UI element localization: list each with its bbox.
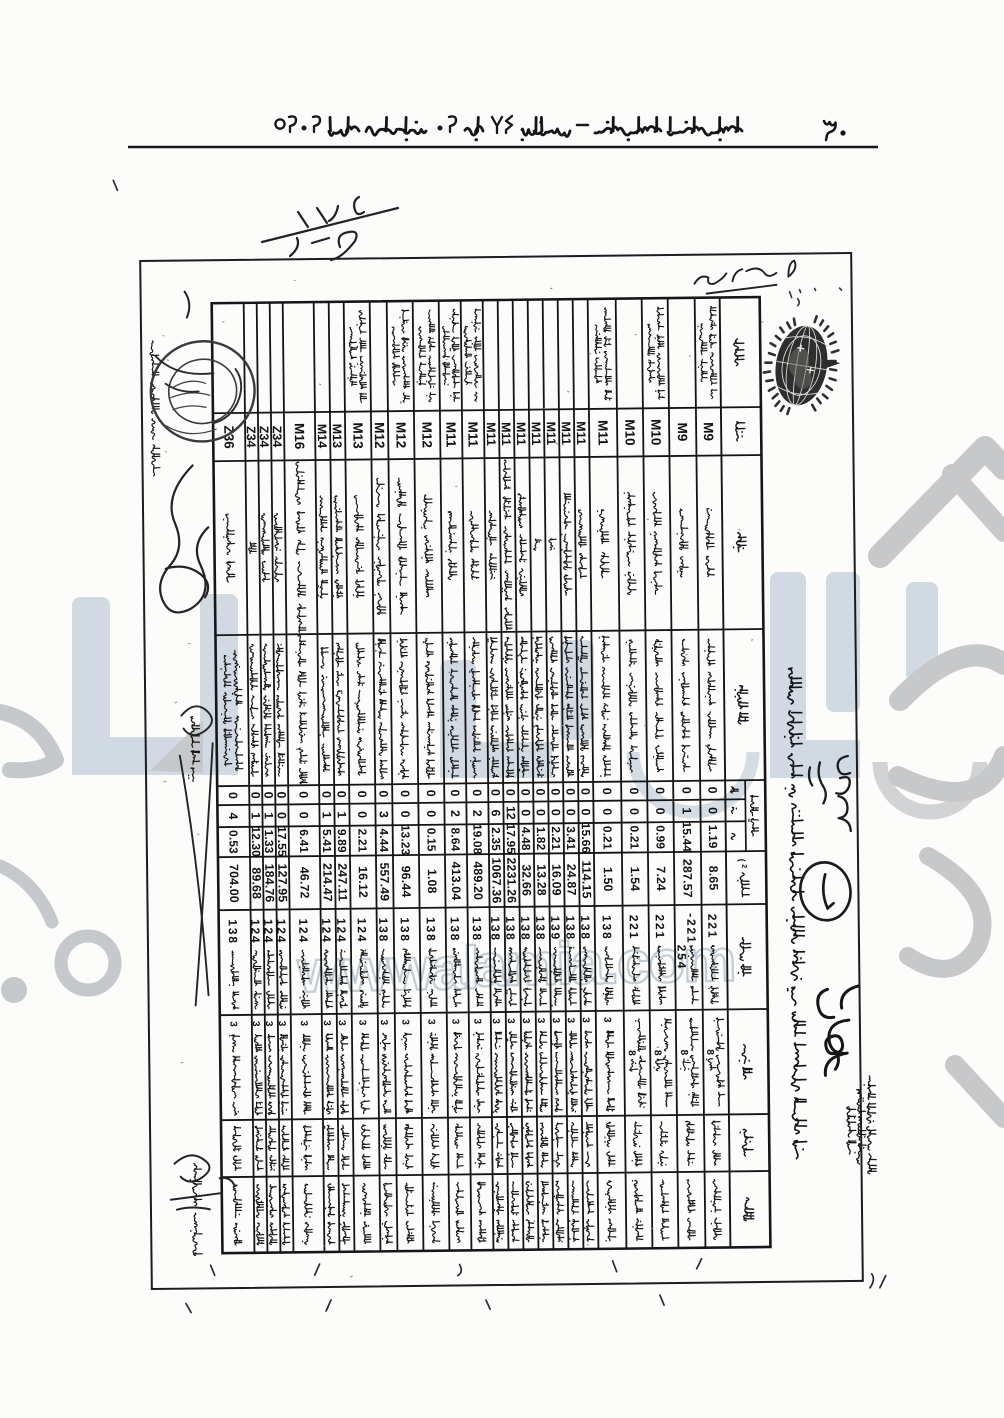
- svg-text:3: 3: [250, 1021, 261, 1027]
- svg-text:2: 2: [740, 864, 747, 868]
- svg-text:0: 0: [424, 810, 438, 817]
- svg-text:46.72: 46.72: [297, 867, 311, 899]
- svg-text:3: 3: [321, 1020, 332, 1026]
- svg-text:138: 138: [376, 918, 390, 944]
- svg-text:114.15: 114.15: [579, 860, 593, 898]
- svg-text:3: 3: [520, 1018, 531, 1024]
- svg-text:wwwal: wwwal: [296, 934, 478, 1005]
- svg-text:M10: M10: [648, 419, 663, 445]
- svg-text:138: 138: [226, 919, 240, 945]
- svg-text:1: 1: [262, 812, 276, 819]
- svg-text:0: 0: [470, 789, 484, 796]
- svg-text:M11: M11: [443, 422, 458, 448]
- svg-text:221: 221: [705, 914, 719, 940]
- svg-text:2.21: 2.21: [355, 829, 369, 853]
- svg-text:3: 3: [399, 1019, 410, 1025]
- svg-text:96.44: 96.44: [399, 866, 413, 898]
- svg-text:3: 3: [490, 1018, 501, 1024]
- svg-text:7.24: 7.24: [654, 866, 668, 891]
- svg-text:16.12: 16.12: [356, 866, 370, 898]
- svg-text:0: 0: [679, 787, 693, 794]
- svg-text:124: 124: [319, 918, 333, 944]
- svg-text:557.49: 557.49: [377, 862, 391, 901]
- svg-text:287.57: 287.57: [680, 859, 694, 898]
- svg-text:0: 0: [424, 790, 438, 797]
- svg-text:254: 254: [674, 945, 688, 971]
- svg-text:17.95: 17.95: [504, 824, 518, 855]
- svg-text:3: 3: [449, 1019, 460, 1025]
- svg-text:138: 138: [488, 916, 502, 942]
- svg-text:M11: M11: [544, 422, 558, 446]
- svg-text:124: 124: [296, 918, 310, 944]
- svg-text:0.53: 0.53: [226, 830, 240, 854]
- svg-text:M11: M11: [465, 421, 480, 447]
- svg-text:3: 3: [336, 1020, 347, 1026]
- svg-text:0: 0: [503, 789, 517, 796]
- svg-text:M13: M13: [350, 422, 365, 449]
- svg-text:3: 3: [471, 1018, 482, 1024]
- svg-text:0: 0: [549, 809, 563, 816]
- svg-text:3: 3: [378, 1019, 389, 1025]
- svg-text:9.89: 9.89: [335, 829, 349, 853]
- svg-text:0: 0: [533, 789, 547, 796]
- svg-text:214.47: 214.47: [320, 863, 334, 902]
- svg-text:0: 0: [653, 808, 667, 815]
- svg-text:16.09: 16.09: [549, 864, 563, 896]
- svg-text:0: 0: [319, 791, 333, 798]
- svg-text:3: 3: [565, 1017, 576, 1023]
- svg-text:89.68: 89.68: [249, 867, 263, 899]
- svg-text:138: 138: [563, 915, 577, 941]
- svg-text:Z34: Z34: [244, 426, 258, 448]
- svg-text:4.44: 4.44: [377, 828, 391, 852]
- svg-text:M13: M13: [330, 424, 344, 449]
- svg-text:M11: M11: [484, 422, 498, 446]
- svg-text:8: 8: [678, 1050, 689, 1056]
- svg-text:0: 0: [519, 809, 533, 816]
- svg-text:13.28: 13.28: [534, 864, 548, 896]
- svg-text:4: 4: [226, 813, 240, 820]
- svg-text:138: 138: [470, 916, 484, 942]
- svg-text:413.04: 413.04: [449, 862, 463, 901]
- svg-text:13.23: 13.23: [398, 825, 412, 856]
- svg-text:3: 3: [550, 1018, 561, 1024]
- svg-text:0: 0: [398, 790, 412, 797]
- svg-text:M12: M12: [372, 422, 387, 448]
- svg-text:0: 0: [376, 790, 390, 797]
- svg-text:124: 124: [248, 919, 262, 945]
- svg-text:M11: M11: [559, 421, 573, 445]
- svg-text:0: 0: [297, 812, 311, 819]
- svg-text:247.11: 247.11: [335, 863, 349, 901]
- svg-text:3.41: 3.41: [564, 826, 578, 850]
- svg-text:0.21: 0.21: [600, 826, 614, 850]
- svg-text:0: 0: [564, 809, 578, 816]
- svg-text:3: 3: [298, 1020, 309, 1026]
- svg-text:M16: M16: [292, 423, 307, 450]
- svg-text:221: 221: [627, 915, 641, 941]
- svg-text:0: 0: [355, 811, 369, 818]
- svg-text:704.00: 704.00: [227, 864, 241, 903]
- svg-text:15.66: 15.66: [579, 823, 593, 854]
- svg-text:3: 3: [425, 1019, 436, 1025]
- svg-text:2.21: 2.21: [549, 826, 563, 850]
- svg-text:139: 139: [548, 916, 562, 942]
- svg-text:0: 0: [578, 788, 592, 795]
- svg-text:0: 0: [627, 808, 641, 815]
- svg-text:4.48: 4.48: [519, 827, 533, 851]
- svg-text:0: 0: [705, 787, 719, 794]
- svg-text:138: 138: [503, 916, 517, 942]
- svg-text:12: 12: [504, 806, 518, 820]
- svg-text:0.21: 0.21: [627, 826, 641, 850]
- svg-text:0: 0: [548, 788, 562, 795]
- svg-text:0: 0: [534, 809, 548, 816]
- svg-text:3: 3: [505, 1018, 516, 1024]
- svg-text:0: 0: [334, 791, 348, 798]
- svg-text:-221: -221: [684, 913, 698, 944]
- svg-text:0: 0: [706, 807, 720, 814]
- svg-text:M14: M14: [315, 424, 329, 449]
- svg-text:8.64: 8.64: [448, 828, 462, 852]
- svg-text:15.44: 15.44: [680, 822, 694, 853]
- svg-text:12.30: 12.30: [249, 826, 263, 857]
- svg-text:19.08: 19.08: [470, 824, 484, 855]
- svg-text:8: 8: [626, 1050, 637, 1056]
- svg-text:3: 3: [263, 1021, 274, 1027]
- svg-text:M11: M11: [499, 422, 513, 446]
- svg-text:124: 124: [334, 918, 348, 944]
- svg-text:0.99: 0.99: [653, 825, 667, 849]
- svg-text:6.41: 6.41: [297, 829, 311, 853]
- svg-text:1.19: 1.19: [706, 825, 720, 849]
- svg-text:M12: M12: [393, 422, 408, 448]
- svg-text:3: 3: [601, 1017, 612, 1023]
- svg-text:0: 0: [600, 788, 614, 795]
- svg-text:M9: M9: [675, 422, 690, 441]
- svg-text:138: 138: [448, 917, 462, 943]
- svg-text:M11: M11: [574, 421, 588, 445]
- svg-text:(: (: [737, 859, 747, 862]
- svg-text:6: 6: [489, 810, 503, 817]
- svg-text:0: 0: [563, 788, 577, 795]
- svg-text:M10: M10: [622, 419, 637, 445]
- svg-text:138: 138: [424, 917, 438, 943]
- svg-text:1.50: 1.50: [601, 867, 615, 892]
- svg-text:0: 0: [355, 791, 369, 798]
- svg-text:M12: M12: [419, 422, 434, 448]
- svg-text:138: 138: [578, 915, 592, 941]
- svg-text:489.20: 489.20: [471, 861, 485, 900]
- svg-text:24.87: 24.87: [564, 864, 578, 896]
- svg-text:0: 0: [579, 809, 593, 816]
- svg-text:1: 1: [680, 807, 694, 814]
- svg-text:M9: M9: [701, 422, 716, 441]
- svg-text:138: 138: [518, 916, 532, 942]
- svg-text:2: 2: [448, 810, 462, 817]
- svg-text:3: 3: [356, 1020, 367, 1026]
- svg-text:0: 0: [226, 792, 240, 799]
- svg-text:M11: M11: [514, 422, 528, 446]
- svg-text:0: 0: [398, 811, 412, 818]
- svg-text:1067.36: 1067.36: [489, 858, 504, 904]
- svg-text:M11: M11: [595, 420, 610, 446]
- svg-text:1: 1: [320, 811, 334, 818]
- svg-text:0: 0: [261, 792, 275, 799]
- svg-text:221: 221: [653, 914, 667, 940]
- svg-text:3: 3: [535, 1018, 546, 1024]
- svg-text:0: 0: [274, 791, 288, 798]
- svg-text:0: 0: [248, 792, 262, 799]
- svg-text:3: 3: [227, 1021, 238, 1027]
- svg-text:1.82: 1.82: [534, 827, 548, 851]
- svg-text:0.15: 0.15: [424, 828, 438, 852]
- svg-text:2231.26: 2231.26: [504, 857, 519, 903]
- svg-text:3: 3: [276, 1021, 287, 1027]
- svg-text:2.35: 2.35: [489, 827, 503, 851]
- svg-text:1: 1: [249, 812, 263, 819]
- svg-text:124: 124: [355, 918, 369, 944]
- svg-text:138: 138: [600, 915, 614, 941]
- svg-text:8: 8: [652, 1050, 663, 1056]
- svg-text:5.41: 5.41: [320, 829, 334, 853]
- svg-text:0: 0: [448, 790, 462, 797]
- svg-text:3: 3: [377, 811, 391, 818]
- svg-text:3: 3: [580, 1017, 591, 1023]
- svg-text:1.54: 1.54: [628, 867, 642, 892]
- svg-text:0: 0: [600, 808, 614, 815]
- svg-text:8.65: 8.65: [706, 866, 720, 891]
- svg-text:0: 0: [296, 791, 310, 798]
- svg-text:0: 0: [653, 787, 667, 794]
- svg-text:138: 138: [533, 916, 547, 942]
- svg-text:1.08: 1.08: [425, 869, 439, 894]
- svg-text:8: 8: [704, 1049, 715, 1055]
- svg-text:0: 0: [518, 789, 532, 796]
- svg-text:32.66: 32.66: [519, 864, 533, 896]
- svg-text:0: 0: [627, 787, 641, 794]
- svg-text:0: 0: [275, 812, 289, 819]
- svg-text:M11: M11: [529, 422, 543, 446]
- svg-text:0: 0: [488, 789, 502, 796]
- svg-text:2: 2: [470, 810, 484, 817]
- svg-text:1: 1: [335, 811, 349, 818]
- svg-text:138: 138: [398, 917, 412, 943]
